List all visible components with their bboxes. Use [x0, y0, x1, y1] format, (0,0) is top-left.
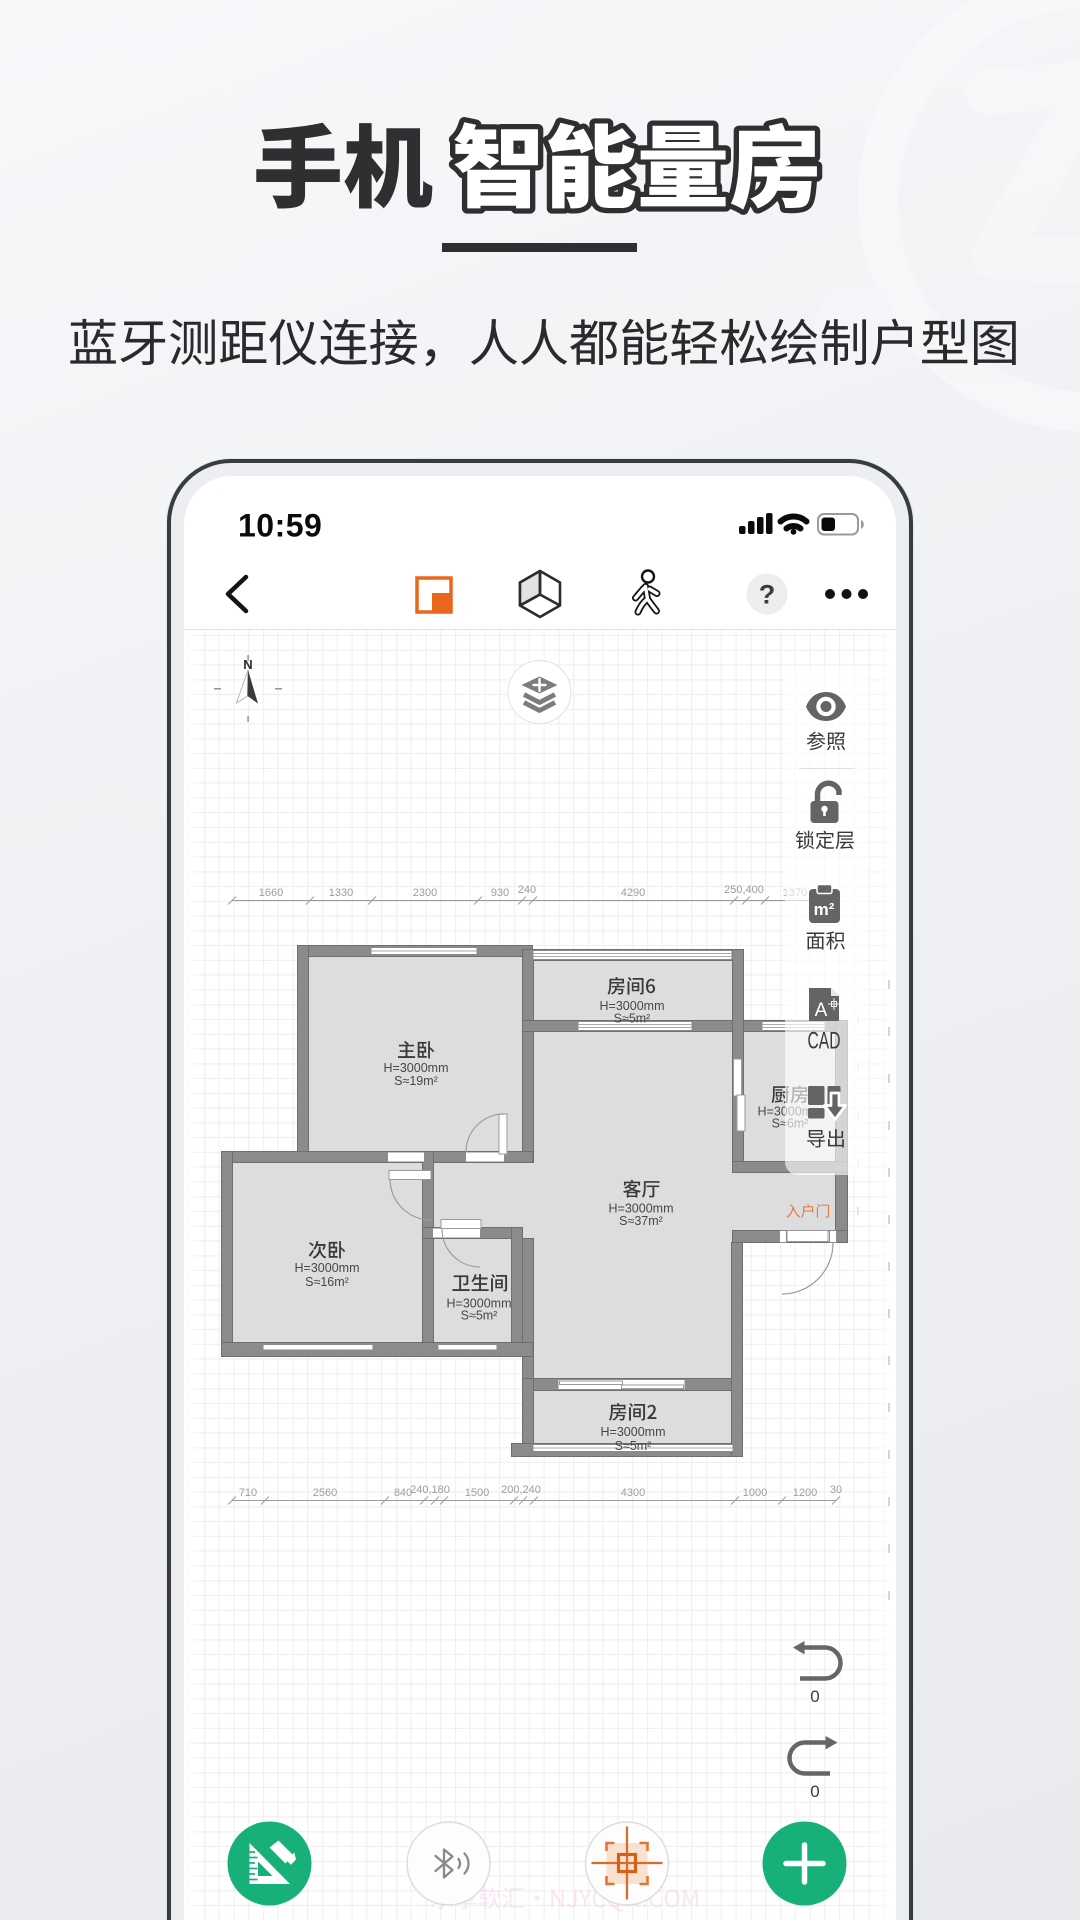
svg-text:2300: 2300 [413, 887, 437, 899]
svg-text:0: 0 [810, 1687, 819, 1706]
svg-text:240: 240 [518, 884, 536, 896]
svg-text:A: A [815, 1000, 828, 1021]
svg-text:0: 0 [810, 1782, 819, 1801]
svg-text:10:59: 10:59 [238, 508, 322, 544]
svg-text:?: ? [759, 580, 776, 610]
svg-text:S≈5m²: S≈5m² [615, 1439, 652, 1453]
svg-text:4290: 4290 [621, 887, 645, 899]
svg-text:2560: 2560 [313, 1487, 337, 1499]
svg-text:S≈16m²: S≈16m² [305, 1275, 349, 1289]
svg-text:H=3000mm: H=3000mm [295, 1261, 360, 1275]
svg-text:S≈5m²: S≈5m² [461, 1309, 498, 1323]
svg-text:m²: m² [814, 900, 835, 919]
svg-text:240,180: 240,180 [410, 1484, 450, 1496]
svg-text:CAD: CAD [808, 1028, 841, 1055]
svg-text:930: 930 [491, 887, 509, 899]
svg-text:S≈37m²: S≈37m² [619, 1214, 663, 1228]
svg-text:30: 30 [830, 1484, 842, 1496]
svg-text:200,240: 200,240 [501, 1484, 541, 1496]
svg-text:1000: 1000 [743, 1487, 767, 1499]
svg-text:1660: 1660 [259, 887, 283, 899]
svg-text:250,400: 250,400 [724, 884, 764, 896]
svg-text:H=3000mm: H=3000mm [384, 1061, 449, 1075]
svg-text:H=3000mm: H=3000mm [601, 1425, 666, 1439]
svg-text:710: 710 [239, 1487, 257, 1499]
svg-text:1200: 1200 [793, 1487, 817, 1499]
svg-text:1330: 1330 [329, 887, 353, 899]
svg-text:1500: 1500 [465, 1487, 489, 1499]
svg-text:S≈19m²: S≈19m² [394, 1074, 438, 1088]
svg-text:4300: 4300 [621, 1487, 645, 1499]
svg-text:S≈5m²: S≈5m² [614, 1012, 651, 1026]
